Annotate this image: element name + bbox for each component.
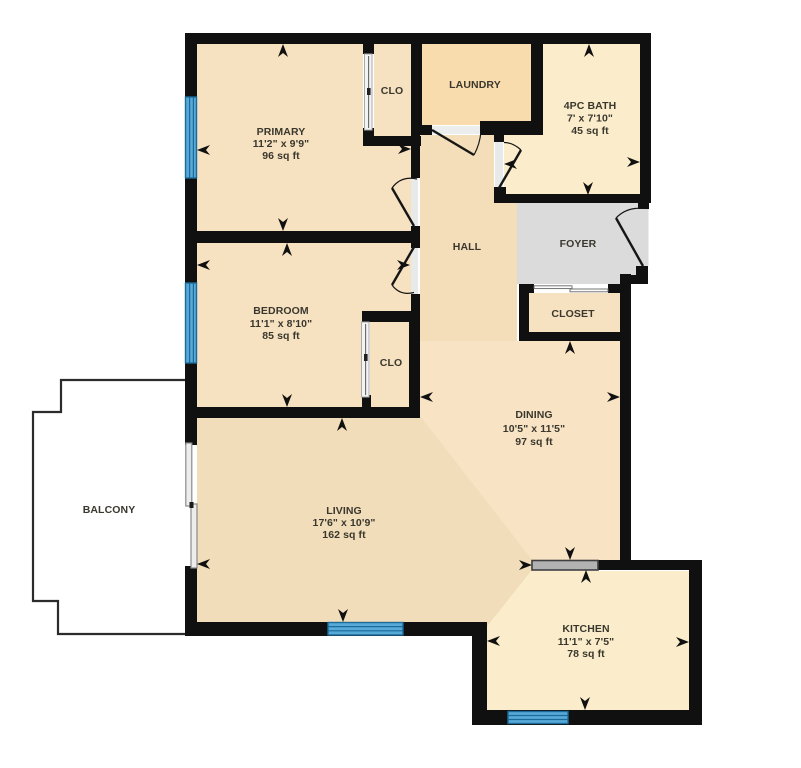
svg-text:CLO: CLO <box>380 357 402 369</box>
svg-text:FOYER: FOYER <box>560 238 597 250</box>
svg-text:11'1" x 8'10": 11'1" x 8'10" <box>250 318 312 330</box>
svg-text:162 sq ft: 162 sq ft <box>322 529 366 541</box>
svg-text:LIVING: LIVING <box>326 505 362 517</box>
svg-text:78 sq ft: 78 sq ft <box>567 648 605 660</box>
svg-text:HALL: HALL <box>453 241 482 253</box>
svg-text:PRIMARY: PRIMARY <box>257 126 306 138</box>
svg-text:96 sq ft: 96 sq ft <box>262 150 300 162</box>
svg-text:BALCONY: BALCONY <box>83 504 136 516</box>
svg-text:97 sq ft: 97 sq ft <box>515 436 553 448</box>
svg-text:4PC BATH: 4PC BATH <box>564 100 617 112</box>
svg-text:10'5" x 11'5": 10'5" x 11'5" <box>503 423 565 435</box>
svg-text:11'2" x 9'9": 11'2" x 9'9" <box>253 138 309 150</box>
svg-text:CLO: CLO <box>381 85 403 97</box>
svg-text:CLOSET: CLOSET <box>551 308 595 320</box>
svg-text:DINING: DINING <box>515 409 552 421</box>
svg-text:45 sq ft: 45 sq ft <box>571 125 609 137</box>
svg-text:11'1" x 7'5": 11'1" x 7'5" <box>558 636 614 648</box>
svg-text:7' x 7'10": 7' x 7'10" <box>567 113 613 125</box>
svg-text:17'6" x 10'9": 17'6" x 10'9" <box>313 517 376 529</box>
svg-text:LAUNDRY: LAUNDRY <box>449 79 501 91</box>
svg-text:BEDROOM: BEDROOM <box>253 305 309 317</box>
svg-text:KITCHEN: KITCHEN <box>562 623 609 635</box>
svg-text:85 sq ft: 85 sq ft <box>262 330 300 342</box>
